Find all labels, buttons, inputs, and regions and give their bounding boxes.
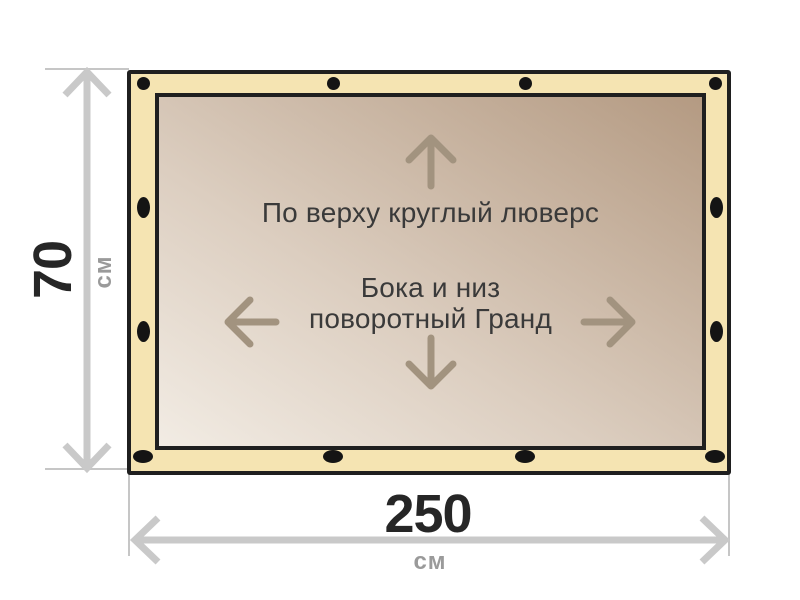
eyelet-top-1-icon	[137, 77, 150, 90]
eyelet-left-2-icon	[137, 321, 150, 342]
eyelet-bottom-3-icon	[515, 450, 535, 463]
eyelet-bottom-2-icon	[323, 450, 343, 463]
top-edge-note: По верху круглый люверс	[155, 197, 706, 228]
arrow-up-icon	[405, 132, 457, 190]
eyelet-top-2-icon	[327, 77, 340, 90]
eyelet-top-3-icon	[519, 77, 532, 90]
arrow-down-icon	[405, 334, 457, 392]
eyelet-right-1-icon	[710, 197, 723, 218]
eyelet-bottom-1-icon	[133, 450, 153, 463]
width-value-label: 250	[384, 483, 471, 545]
sides-bottom-note-line1: Бока и низ	[155, 272, 706, 303]
sides-bottom-note-line2: поворотный Гранд	[155, 303, 706, 334]
height-value-label: 70	[22, 241, 84, 299]
sides-bottom-note: Бока и низ поворотный Гранд	[155, 272, 706, 334]
banner-size-diagram: По верху круглый люверс Бока и низ повор…	[0, 0, 800, 600]
width-unit-label: см	[413, 548, 446, 576]
height-unit-label: см	[90, 255, 118, 288]
eyelet-bottom-4-icon	[705, 450, 725, 463]
eyelet-right-2-icon	[710, 321, 723, 342]
eyelet-top-4-icon	[709, 77, 722, 90]
eyelet-left-1-icon	[137, 197, 150, 218]
